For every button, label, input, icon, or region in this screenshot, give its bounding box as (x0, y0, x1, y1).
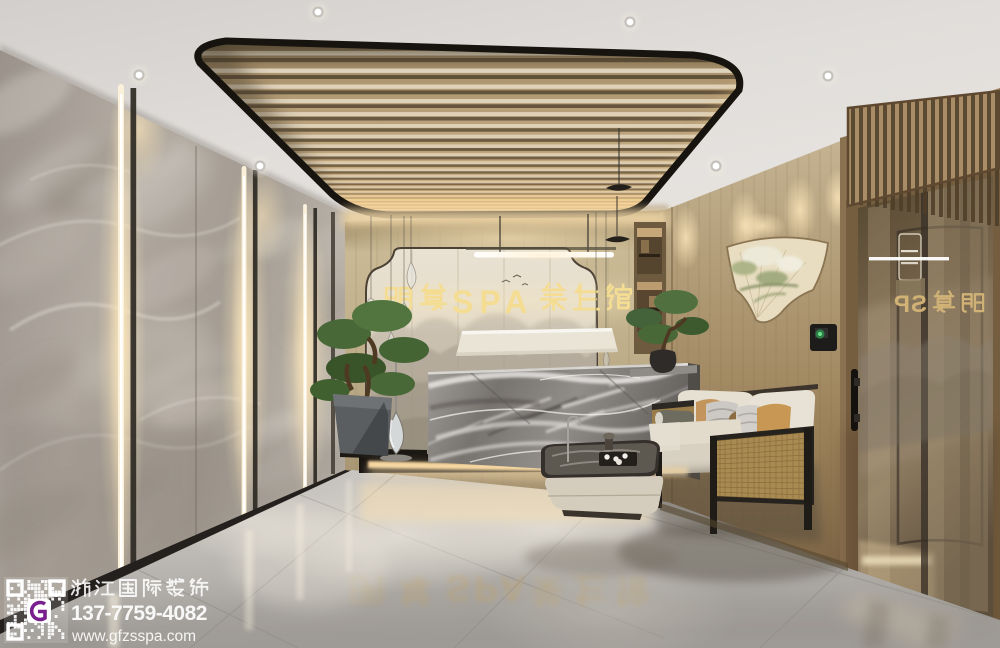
svg-text:www.gfzsspa.com: www.gfzsspa.com (71, 628, 196, 645)
svg-text:SPA: SPA (446, 568, 529, 609)
svg-text:137-7759-4082: 137-7759-4082 (71, 602, 207, 625)
svg-text:SPA: SPA (452, 284, 533, 320)
svg-text:SP: SP (893, 291, 927, 318)
